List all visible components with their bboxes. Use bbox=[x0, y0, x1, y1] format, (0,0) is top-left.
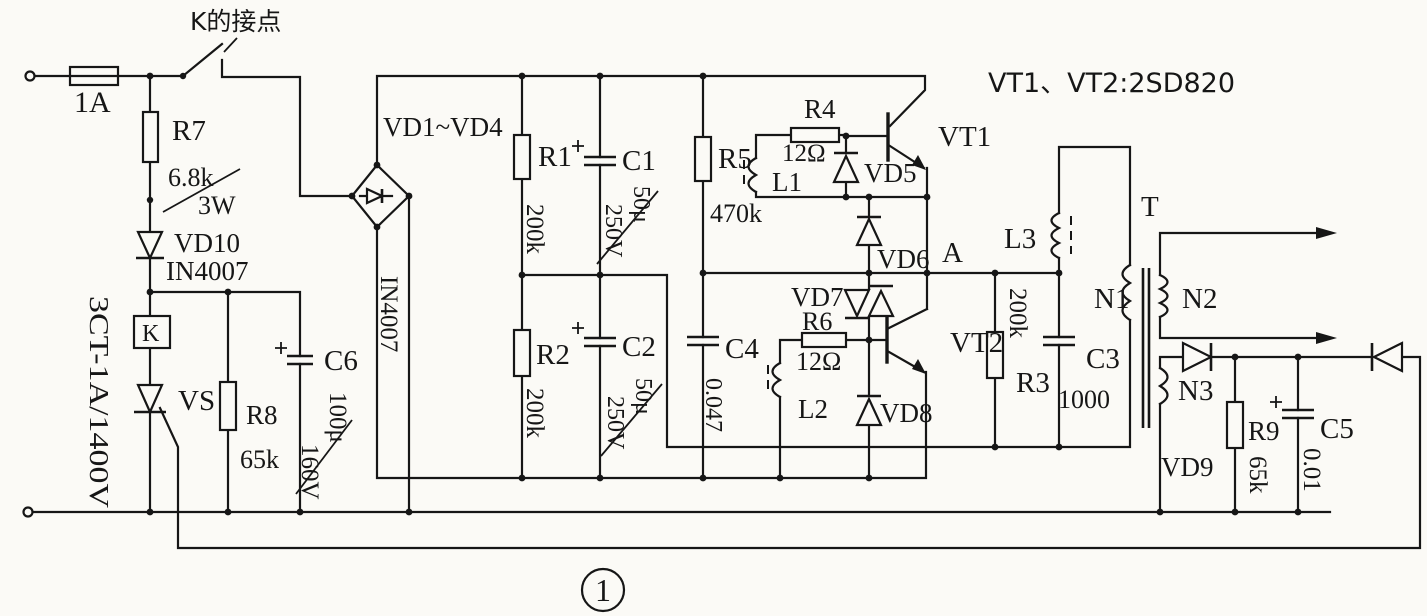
r5-body bbox=[695, 137, 711, 181]
c4-label: C4 bbox=[725, 333, 759, 365]
c6-label: C6 bbox=[324, 345, 358, 377]
c6-value: 100μ bbox=[324, 392, 351, 443]
output-diode-icon bbox=[1374, 343, 1402, 371]
c5-label: C5 bbox=[1320, 413, 1354, 445]
vd7-diode-icon-left bbox=[845, 290, 869, 316]
vt1-label: VT1 bbox=[938, 121, 991, 153]
vd6-label: VD6 bbox=[877, 244, 930, 274]
figure-number-text: 1 bbox=[595, 572, 611, 608]
input-terminal-top bbox=[26, 72, 35, 81]
r9-value: 65k bbox=[1244, 456, 1271, 494]
c2-label: C2 bbox=[622, 331, 656, 363]
transistor-note: VT1、VT2:2SD820 bbox=[988, 68, 1235, 99]
c1-voltage: 250V bbox=[600, 204, 626, 258]
input-terminal-bottom bbox=[24, 508, 33, 517]
r9-label: R9 bbox=[1248, 416, 1280, 446]
vd10-label: VD10 bbox=[174, 228, 240, 258]
c1-label: C1 bbox=[622, 145, 656, 177]
vd10-diode-icon bbox=[138, 232, 162, 258]
transformer-label: T bbox=[1141, 191, 1159, 223]
bridge-rectifier-symbol bbox=[352, 165, 409, 227]
r8-body bbox=[220, 382, 236, 430]
c1-polarity-plus bbox=[572, 140, 584, 152]
switch-contact-label: K的接点 bbox=[190, 7, 281, 36]
l2-coil bbox=[773, 363, 781, 397]
r5-value: 470k bbox=[710, 199, 762, 228]
vd8-label: VD8 bbox=[880, 398, 933, 428]
labels: 1A K的接点 R7 6.8k 3W VD10 IN4007 3CT-1A/14… bbox=[74, 7, 1354, 509]
vd9-label: VD9 bbox=[1161, 452, 1214, 482]
c6-voltage: 160V bbox=[296, 444, 323, 500]
r4-label: R4 bbox=[804, 94, 836, 124]
vt2-emitter-arrow bbox=[912, 359, 926, 374]
fuse-label: 1A bbox=[74, 86, 111, 119]
c3-label: C3 bbox=[1086, 343, 1120, 375]
r7-power: 3W bbox=[198, 191, 236, 220]
transformer-core bbox=[1143, 268, 1149, 428]
l3-coil bbox=[1052, 213, 1060, 258]
n3-label: N3 bbox=[1178, 375, 1213, 407]
node-a-label: A bbox=[942, 237, 963, 269]
vt2-label: VT2 bbox=[950, 327, 1003, 359]
vd6-diode-icon bbox=[857, 219, 881, 245]
n3-coil bbox=[1160, 368, 1168, 404]
vd7-diode-icon-right bbox=[869, 291, 893, 316]
r7-body bbox=[143, 112, 158, 162]
c3-value: 1000 bbox=[1058, 385, 1110, 414]
c2-voltage: 250V bbox=[602, 396, 628, 450]
vd10-part: IN4007 bbox=[166, 256, 249, 286]
output-arrow-top bbox=[1316, 227, 1337, 239]
l1-label: L1 bbox=[772, 167, 802, 197]
vd5-diode-icon bbox=[834, 156, 858, 182]
vs-label: VS bbox=[178, 385, 215, 417]
bridge-diode-icon bbox=[367, 189, 382, 203]
vd5-label: VD5 bbox=[864, 158, 917, 188]
r6-value: 12Ω bbox=[796, 347, 841, 376]
l2-label: L2 bbox=[798, 394, 828, 424]
n1-label: N1 bbox=[1094, 283, 1129, 315]
r2-label: R2 bbox=[536, 339, 570, 371]
r3-value: 200k bbox=[1004, 288, 1031, 339]
c2-plates bbox=[584, 338, 616, 346]
r4-value: 12Ω bbox=[782, 140, 826, 167]
r7-label: R7 bbox=[172, 115, 206, 147]
n2-coil bbox=[1160, 275, 1168, 317]
figure-number: 1 bbox=[582, 569, 624, 611]
vd8-diode-icon bbox=[857, 399, 881, 425]
circuit-diagram-page: 1A K的接点 R7 6.8k 3W VD10 IN4007 3CT-1A/14… bbox=[0, 0, 1427, 616]
vs-thyristor-icon bbox=[138, 385, 162, 412]
bridge-label: VD1~VD4 bbox=[383, 112, 503, 142]
scr-spec-label: 3CT-1A/1400V bbox=[84, 296, 114, 509]
relay-label: K bbox=[142, 321, 160, 347]
r7-value: 6.8k bbox=[168, 163, 214, 192]
c6-polarity-plus bbox=[275, 342, 287, 354]
r3-label: R3 bbox=[1016, 367, 1050, 399]
c5-plates bbox=[1282, 410, 1314, 418]
bridge-part: IN4007 bbox=[375, 276, 402, 352]
c4-plates bbox=[687, 337, 719, 345]
circuit-schematic: 1A K的接点 R7 6.8k 3W VD10 IN4007 3CT-1A/14… bbox=[0, 0, 1427, 616]
c2-value: 50μ bbox=[630, 378, 656, 415]
r5-label: R5 bbox=[718, 143, 752, 175]
r2-value: 200k bbox=[521, 388, 548, 439]
r1-body bbox=[514, 135, 530, 179]
c4-value: 0.047 bbox=[700, 378, 726, 432]
output-arrows bbox=[1316, 227, 1337, 344]
n2-label: N2 bbox=[1182, 283, 1217, 315]
r8-value: 65k bbox=[240, 445, 279, 474]
c1-value: 50μ bbox=[628, 186, 654, 223]
vd9-diode-icon bbox=[1183, 343, 1211, 371]
rating-slashes bbox=[163, 169, 662, 494]
r2-body bbox=[514, 330, 530, 376]
r1-value: 200k bbox=[521, 204, 548, 255]
c5-polarity-plus bbox=[1270, 396, 1282, 408]
r9-body bbox=[1227, 402, 1243, 448]
c2-polarity-plus bbox=[572, 322, 584, 334]
r8-label: R8 bbox=[246, 400, 278, 430]
output-arrow-bottom bbox=[1316, 332, 1337, 344]
l3-label: L3 bbox=[1004, 223, 1036, 255]
c1-plates bbox=[584, 157, 616, 165]
c6-plates bbox=[287, 356, 313, 364]
c3-plates bbox=[1043, 337, 1075, 345]
r6-label: R6 bbox=[802, 307, 832, 336]
r1-label: R1 bbox=[538, 141, 572, 173]
c5-value: 0.01 bbox=[1298, 448, 1325, 492]
